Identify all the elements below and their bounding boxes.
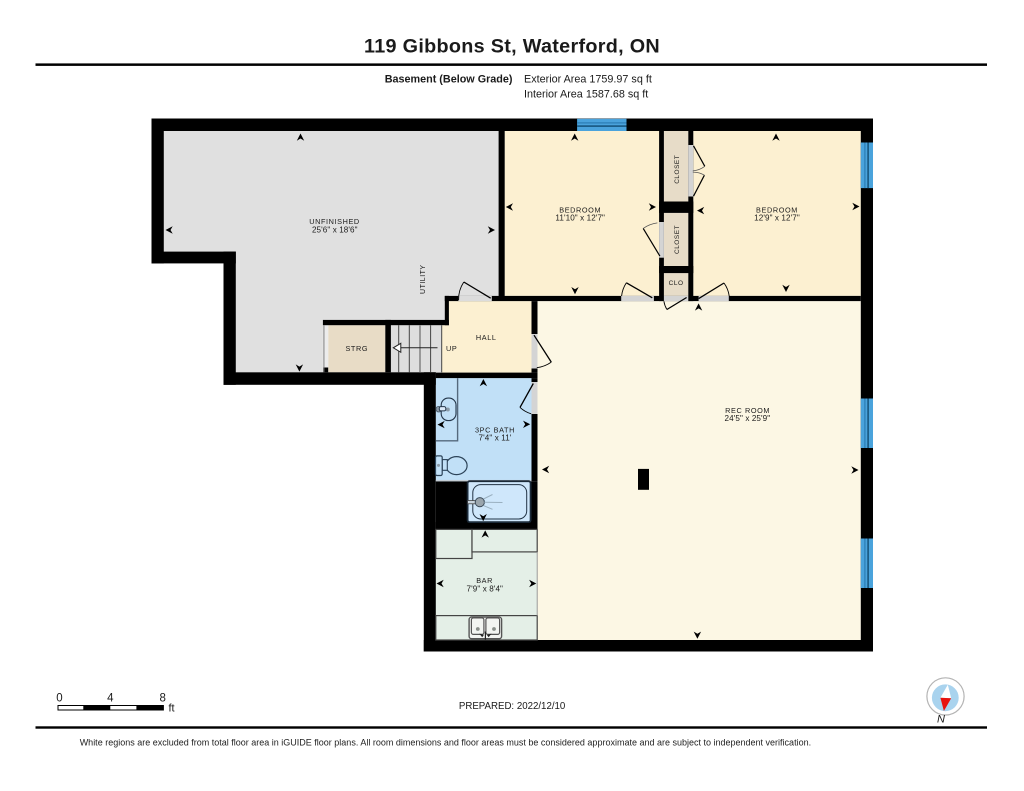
svg-text:ft: ft	[169, 703, 175, 715]
svg-text:11'10" x 12'7": 11'10" x 12'7"	[555, 213, 605, 222]
svg-text:White regions are excluded fro: White regions are excluded from total fl…	[80, 737, 811, 747]
svg-text:PREPARED: 2022/12/10: PREPARED: 2022/12/10	[459, 701, 566, 712]
svg-text:Exterior Area 1759.97 sq ft: Exterior Area 1759.97 sq ft	[524, 74, 652, 86]
svg-text:UP: UP	[446, 344, 457, 353]
svg-text:8: 8	[159, 692, 165, 704]
svg-text:HALL: HALL	[476, 333, 497, 342]
svg-text:CLOSET: CLOSET	[674, 155, 681, 184]
svg-text:12'9" x 12'7": 12'9" x 12'7"	[754, 213, 800, 222]
svg-text:UTILITY: UTILITY	[420, 264, 427, 294]
svg-text:25'6" x 18'6": 25'6" x 18'6"	[312, 226, 358, 235]
svg-text:4: 4	[107, 692, 114, 704]
svg-text:0: 0	[56, 692, 62, 704]
svg-text:STRG: STRG	[345, 344, 368, 353]
svg-text:CLOSET: CLOSET	[674, 225, 681, 254]
svg-text:Basement (Below Grade): Basement (Below Grade)	[385, 74, 513, 86]
svg-text:7'9" x 8'4": 7'9" x 8'4"	[467, 584, 504, 593]
svg-text:CLO: CLO	[669, 280, 684, 287]
svg-text:24'5" x 25'9": 24'5" x 25'9"	[725, 414, 771, 423]
svg-text:Interior Area 1587.68 sq ft: Interior Area 1587.68 sq ft	[524, 89, 648, 101]
svg-text:7'4" x 11': 7'4" x 11'	[479, 433, 512, 442]
svg-text:119 Gibbons St, Waterford, ON: 119 Gibbons St, Waterford, ON	[364, 36, 660, 58]
svg-text:N: N	[937, 714, 945, 726]
